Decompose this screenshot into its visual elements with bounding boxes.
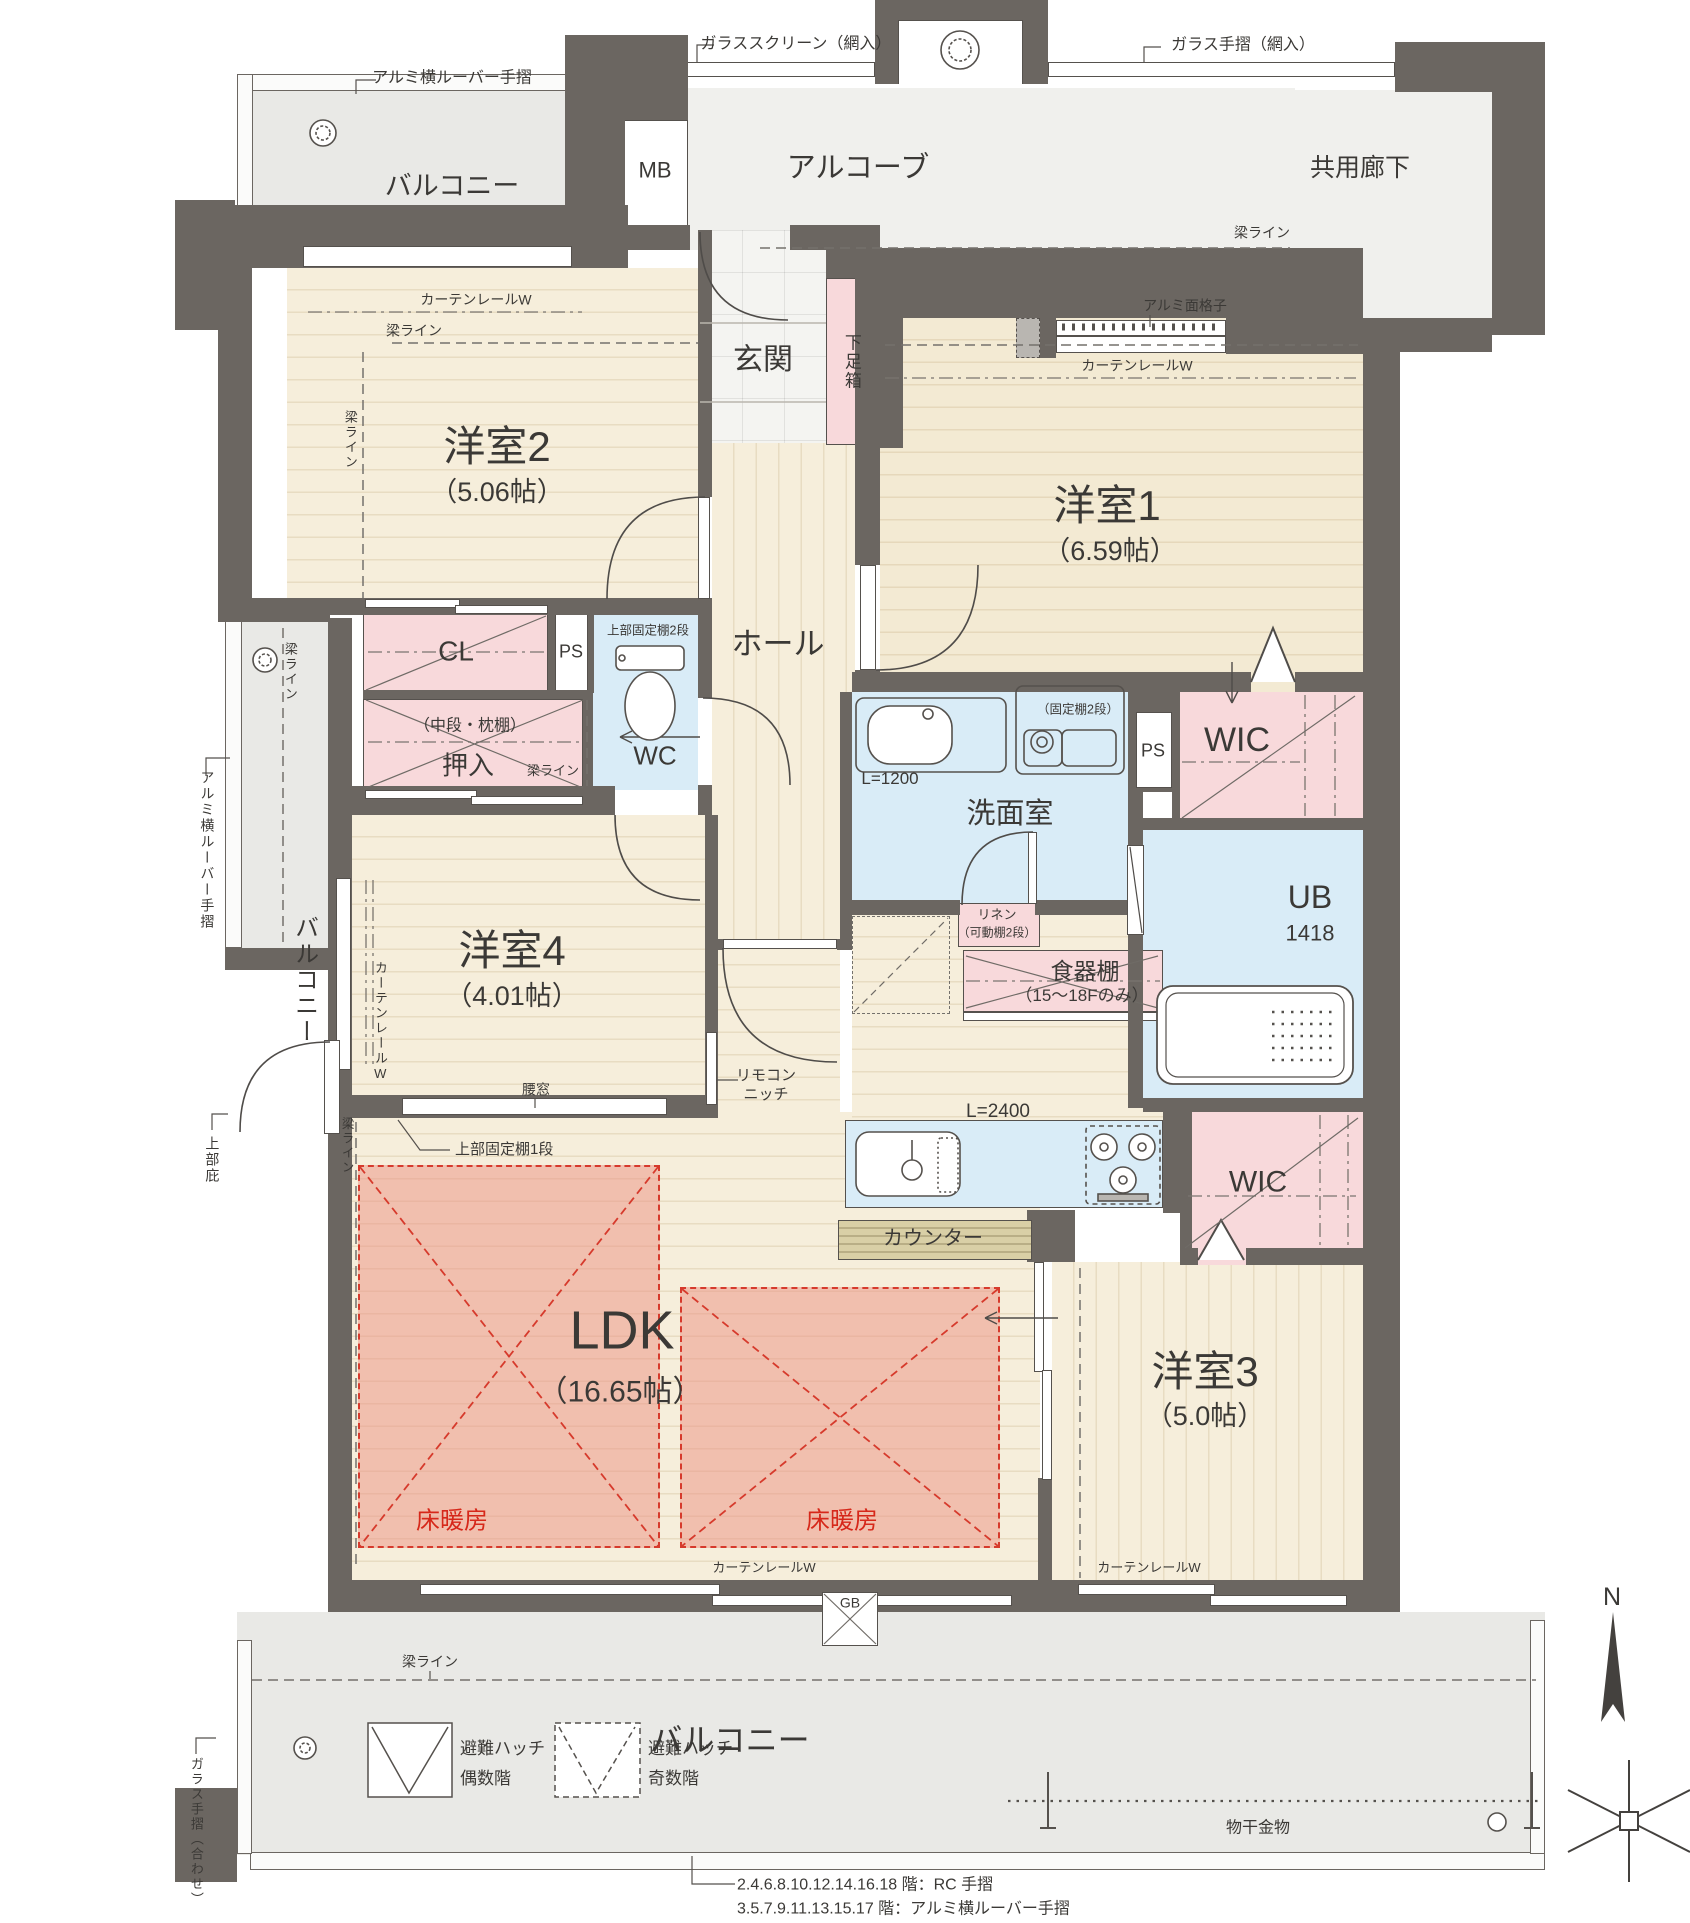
curtain-rail-label: カーテンレールW (1081, 359, 1192, 374)
curtain-rail-label: カーテンレールW (373, 961, 387, 1083)
oshiire-label: 押入 (442, 752, 494, 779)
alumi-louver-label: アルミ横ルーバー手摺 (372, 71, 532, 88)
curtain-rail-label: カーテンレールW (1097, 1561, 1200, 1575)
beam-line-label: 梁ライン (339, 1117, 352, 1175)
shokkidana-note: （15〜18Fのみ） (1015, 987, 1148, 1005)
jobu-kotei-1-label: 上部固定棚1段 (455, 1142, 553, 1158)
jobu-kotei-2-label: 上部固定棚2段 (607, 624, 689, 637)
beam-line-label: 梁ライン (343, 410, 357, 470)
mb-label: MB (639, 158, 672, 181)
cl-label: CL (438, 636, 474, 665)
ps-label: PS (1141, 742, 1165, 761)
genkan-label: 玄関 (733, 344, 793, 376)
kotei-2-label: （固定棚2段） (1037, 703, 1119, 716)
room-ldk-size: （16.65帖） (537, 1376, 702, 1408)
wc-label: WC (633, 742, 676, 769)
l1200-label: L=1200 (861, 770, 918, 788)
alumi-mengoshi-label: アルミ面格子 (1143, 299, 1227, 314)
beam-line-label: 梁ライン (527, 764, 579, 778)
ub-size: 1418 (1286, 921, 1335, 944)
curtain-rail-label: カーテンレールW (420, 293, 531, 308)
gb-label: GB (840, 1596, 860, 1611)
curtain-rail-label: カーテンレールW (712, 1561, 815, 1575)
corridor-label: 共用廊下 (1310, 155, 1410, 181)
room-yoshitsu3-label: 洋室3 (1151, 1350, 1258, 1394)
chudan-makura-label: （中段・枕棚） (414, 719, 526, 736)
note-louver: 3.5.7.9.11.13.15.17 階：アルミ横ルーバー手摺 (737, 1902, 1070, 1919)
room-yoshitsu1-label: 洋室1 (1053, 484, 1160, 528)
room-yoshitsu3-size: （5.0帖） (1146, 1402, 1265, 1430)
shokkidana-label: 食器棚 (1051, 959, 1120, 983)
remocon-niche-label: リモコン (736, 1068, 796, 1084)
room-yoshitsu1-size: （6.59帖） (1043, 537, 1177, 565)
beam-line-label: 梁ライン (283, 642, 297, 702)
room-yoshitsu4-size: （4.01帖） (445, 982, 579, 1010)
glass-rail-awase-label: ガラス手摺（合わせ） (189, 1757, 203, 1907)
balcony-top-label: バルコニー (385, 172, 519, 200)
koshimado-label: 腰窓 (522, 1083, 550, 1098)
counter-label: カウンター (883, 1229, 983, 1250)
hinan-hatch-even-label2: 偶数階 (460, 1770, 511, 1788)
floor-heating-label: 床暖房 (806, 1508, 878, 1533)
alumi-louver-label: アルミ横ルーバー手摺 (200, 770, 215, 930)
floor-plan: バルコニー アルミ横ルーバー手摺 ガラススクリーン（網入） ガラス手摺（網入） … (0, 0, 1690, 1923)
senmen-label: 洗面室 (966, 799, 1053, 829)
jobu-hisashi-label: 上部庇 (205, 1136, 220, 1184)
beam-line-label: 梁ライン (402, 1655, 458, 1670)
room-ldk-label: LDK (569, 1303, 674, 1360)
room-yoshitsu2-size: （5.06帖） (430, 478, 564, 506)
hinan-hatch-even-label: 避難ハッチ (460, 1740, 545, 1758)
linen-label: リネン (977, 908, 1016, 922)
floor-heating-label: 床暖房 (416, 1508, 488, 1533)
plan-linework (0, 0, 1690, 1923)
l2400-label: L=2400 (966, 1102, 1030, 1122)
hall-label: ホール (732, 629, 825, 662)
room-yoshitsu2-label: 洋室2 (443, 425, 550, 469)
getabako-label: 下足箱 (842, 334, 860, 391)
compass-icon (1568, 1612, 1690, 1882)
wic-upper-label: WIC (1204, 723, 1270, 759)
note-rc: 2.4.6.8.10.12.14.16.18 階：RC 手摺 (737, 1878, 993, 1895)
monohoshi-label: 物干金物 (1226, 1821, 1290, 1838)
room-yoshitsu4-label: 洋室4 (458, 929, 565, 973)
remocon-niche-label2: ニッチ (743, 1087, 788, 1103)
glass-screen-label: ガラススクリーン（網入） (701, 37, 892, 54)
glass-rail-label: ガラス手摺（網入） (1171, 38, 1315, 55)
hinan-hatch-odd-label2: 奇数階 (648, 1770, 699, 1788)
beam-line-label: 梁ライン (386, 324, 442, 339)
wic-lower-label: WIC (1229, 1166, 1287, 1198)
balcony-left-label: バルコニー (291, 915, 316, 1045)
ub-label: UB (1288, 881, 1332, 915)
alcove-label: アルコーブ (787, 153, 929, 183)
linen-note: （可動棚2段） (958, 927, 1037, 940)
ps-label: PS (559, 643, 583, 662)
beam-line-label: 梁ライン (1234, 226, 1290, 241)
hinan-hatch-odd-label: 避難ハッチ (648, 1740, 733, 1758)
compass-n-label: N (1603, 1584, 1621, 1610)
